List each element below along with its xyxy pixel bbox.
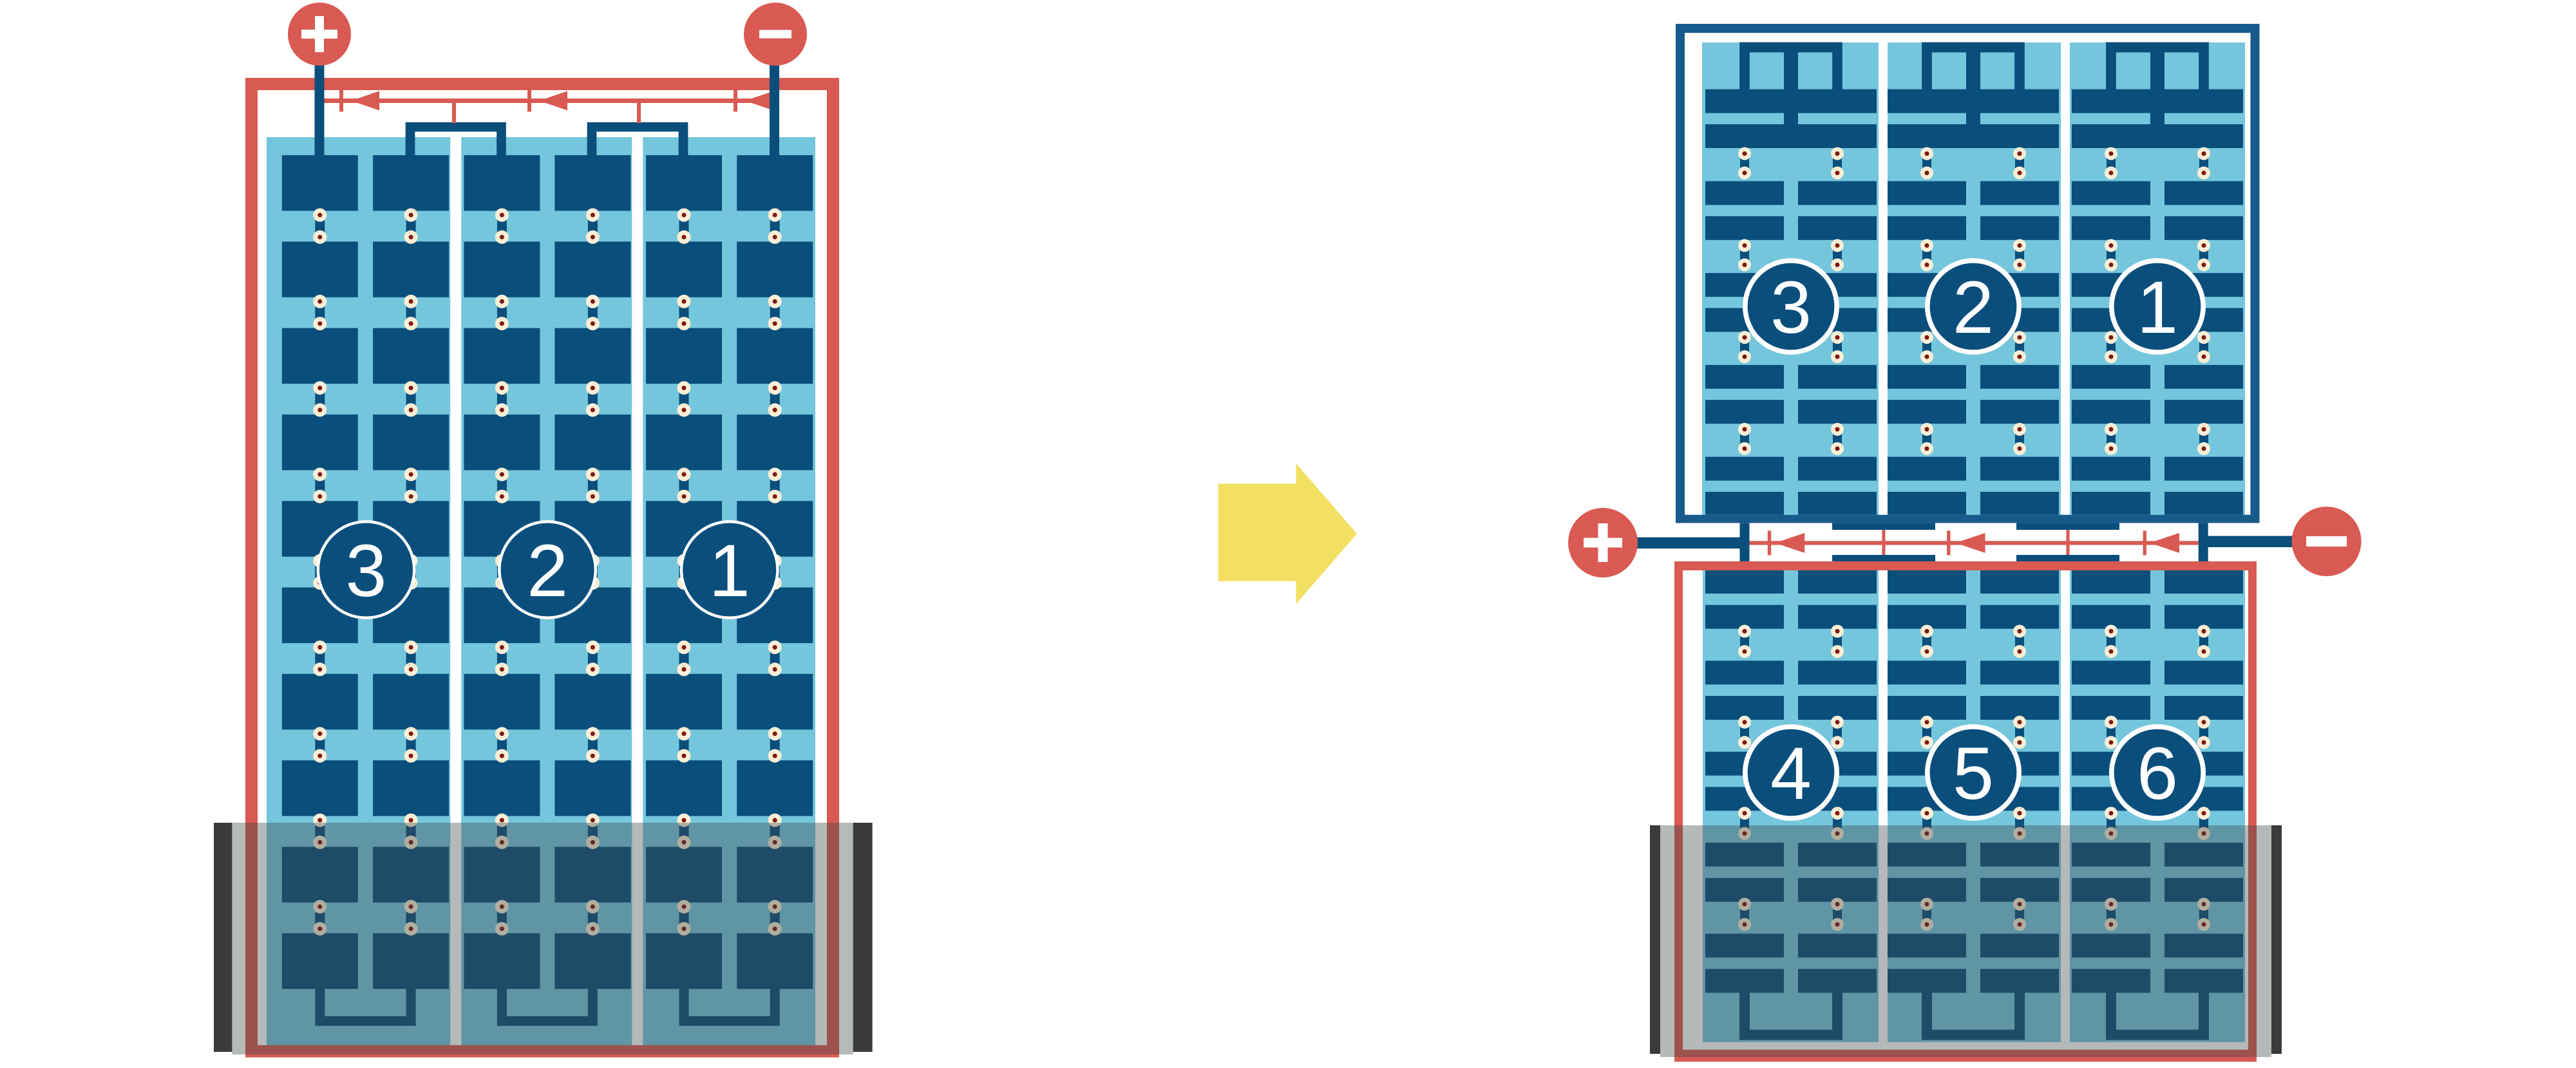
svg-text:4: 4 xyxy=(1770,733,1812,815)
svg-text:5: 5 xyxy=(1953,733,1994,815)
svg-text:2: 2 xyxy=(1953,267,1994,349)
svg-text:3: 3 xyxy=(346,530,387,612)
svg-text:3: 3 xyxy=(1770,267,1812,349)
svg-text:1: 1 xyxy=(2137,267,2178,349)
svg-text:1: 1 xyxy=(709,530,750,612)
svg-text:2: 2 xyxy=(527,530,568,612)
svg-text:6: 6 xyxy=(2137,733,2178,815)
